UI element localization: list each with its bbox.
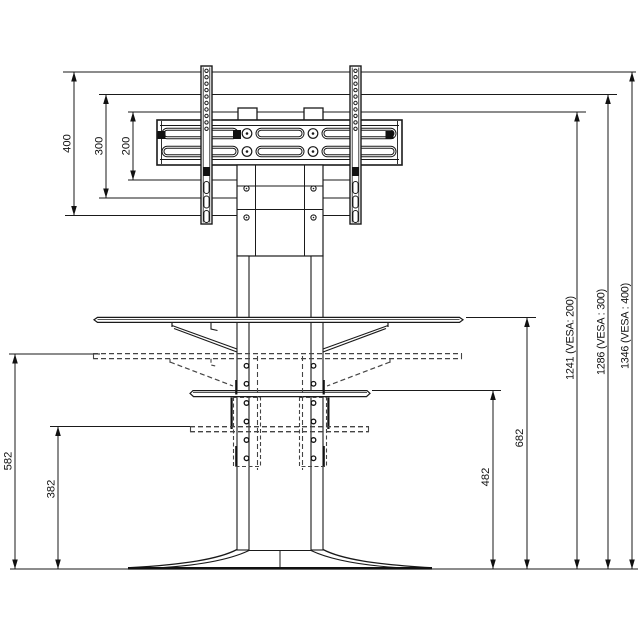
support-column <box>237 165 323 256</box>
dimension-label-400: 400 <box>62 134 74 153</box>
dashed-gusset-right <box>327 362 390 386</box>
dimension-label-1241-vesa200: 1241 (VESA: 200) <box>565 296 577 380</box>
rail-mark <box>203 167 210 176</box>
dimension-label-382: 382 <box>46 480 58 499</box>
rail-mark <box>352 167 359 176</box>
top-shelf-gussets <box>172 322 388 352</box>
base-flare-right-outer <box>323 550 432 568</box>
dashed-shelf-upper <box>93 354 462 386</box>
dimension-label-200: 200 <box>121 137 133 156</box>
dimension-label-1286-vesa300: 1286 (VESA : 300) <box>596 289 608 375</box>
mount-bracket-bar <box>157 120 402 165</box>
dashed-shelf-lower <box>190 427 369 432</box>
dimension-label-582: 582 <box>3 452 15 471</box>
shelf-hook <box>211 323 218 331</box>
leg-holes <box>244 364 316 461</box>
dimension-label-300: 300 <box>94 137 106 156</box>
base-flare-left-outer <box>128 550 237 568</box>
vesa-rail-left <box>201 66 212 224</box>
dashed-shelf-hook <box>211 359 218 367</box>
tv-stand-dimension-diagram: 400 300 200 582 382 682 482 1241 (VESA: … <box>0 0 640 640</box>
base-pedestal <box>128 550 432 569</box>
dashed-gusset-left <box>170 362 233 386</box>
diagram-canvas: 400 300 200 582 382 682 482 1241 (VESA: … <box>0 0 640 640</box>
rail-slots <box>353 182 358 223</box>
dimension-label-1346-vesa400: 1346 (VESA : 400) <box>620 283 632 369</box>
dimension-label-482: 482 <box>480 468 492 487</box>
base-flare-left-inner <box>152 551 249 569</box>
base-flare-right-inner <box>311 551 408 569</box>
top-shelf <box>94 317 463 322</box>
middle-shelf <box>190 391 370 397</box>
dimension-label-682: 682 <box>514 429 526 448</box>
vesa-rail-right <box>350 66 361 224</box>
rail-slots <box>204 182 209 223</box>
